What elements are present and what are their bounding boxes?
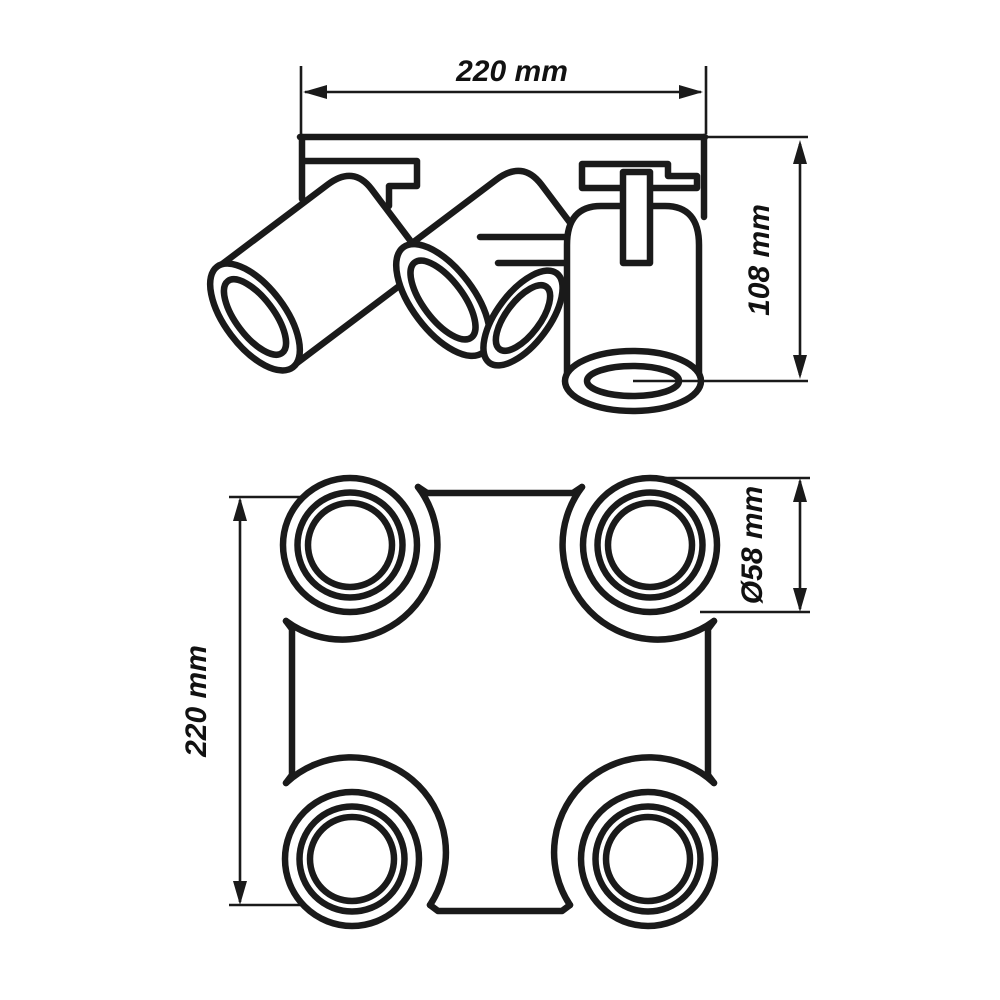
arrowhead-left-icon (303, 85, 327, 99)
head-diameter-label: Ø58 mm (736, 486, 769, 604)
arrowhead-up-icon (233, 497, 247, 521)
head-top-left (283, 478, 417, 612)
arrowhead-down-icon (793, 355, 807, 379)
arrowhead-up-icon (793, 478, 807, 502)
arrowhead-down-icon (233, 881, 247, 905)
spot-4-group (565, 172, 701, 411)
head-outer-ring (583, 478, 717, 612)
head-bottom-right (581, 792, 715, 926)
side-width-label: 220 mm (455, 55, 568, 88)
plate-top-edge (418, 487, 582, 493)
arrowhead-down-icon (793, 588, 807, 612)
plate-left-edge (286, 621, 292, 783)
side-elevation-view: 220 mm 108 mm (193, 55, 808, 411)
spot-1-group (193, 164, 429, 385)
arrowhead-up-icon (793, 140, 807, 164)
t-bracket-stem (623, 172, 650, 263)
head-outer-ring (283, 478, 417, 612)
head-outer-ring (581, 792, 715, 926)
plate-height-label: 220 mm (180, 645, 213, 758)
head-outer-ring (285, 792, 419, 926)
bottom-plan-view: 220 mm Ø58 mm (180, 478, 810, 926)
head-top-right (583, 478, 717, 612)
side-height-label: 108 mm (743, 204, 776, 316)
plate-right-edge (708, 621, 714, 783)
plate-bottom-edge (430, 905, 570, 911)
arrowhead-right-icon (679, 85, 703, 99)
dimension-side-width: 220 mm (301, 55, 706, 134)
head-bottom-left (285, 792, 419, 926)
spotlight-technical-drawing: 220 mm 108 mm (0, 0, 1000, 1000)
